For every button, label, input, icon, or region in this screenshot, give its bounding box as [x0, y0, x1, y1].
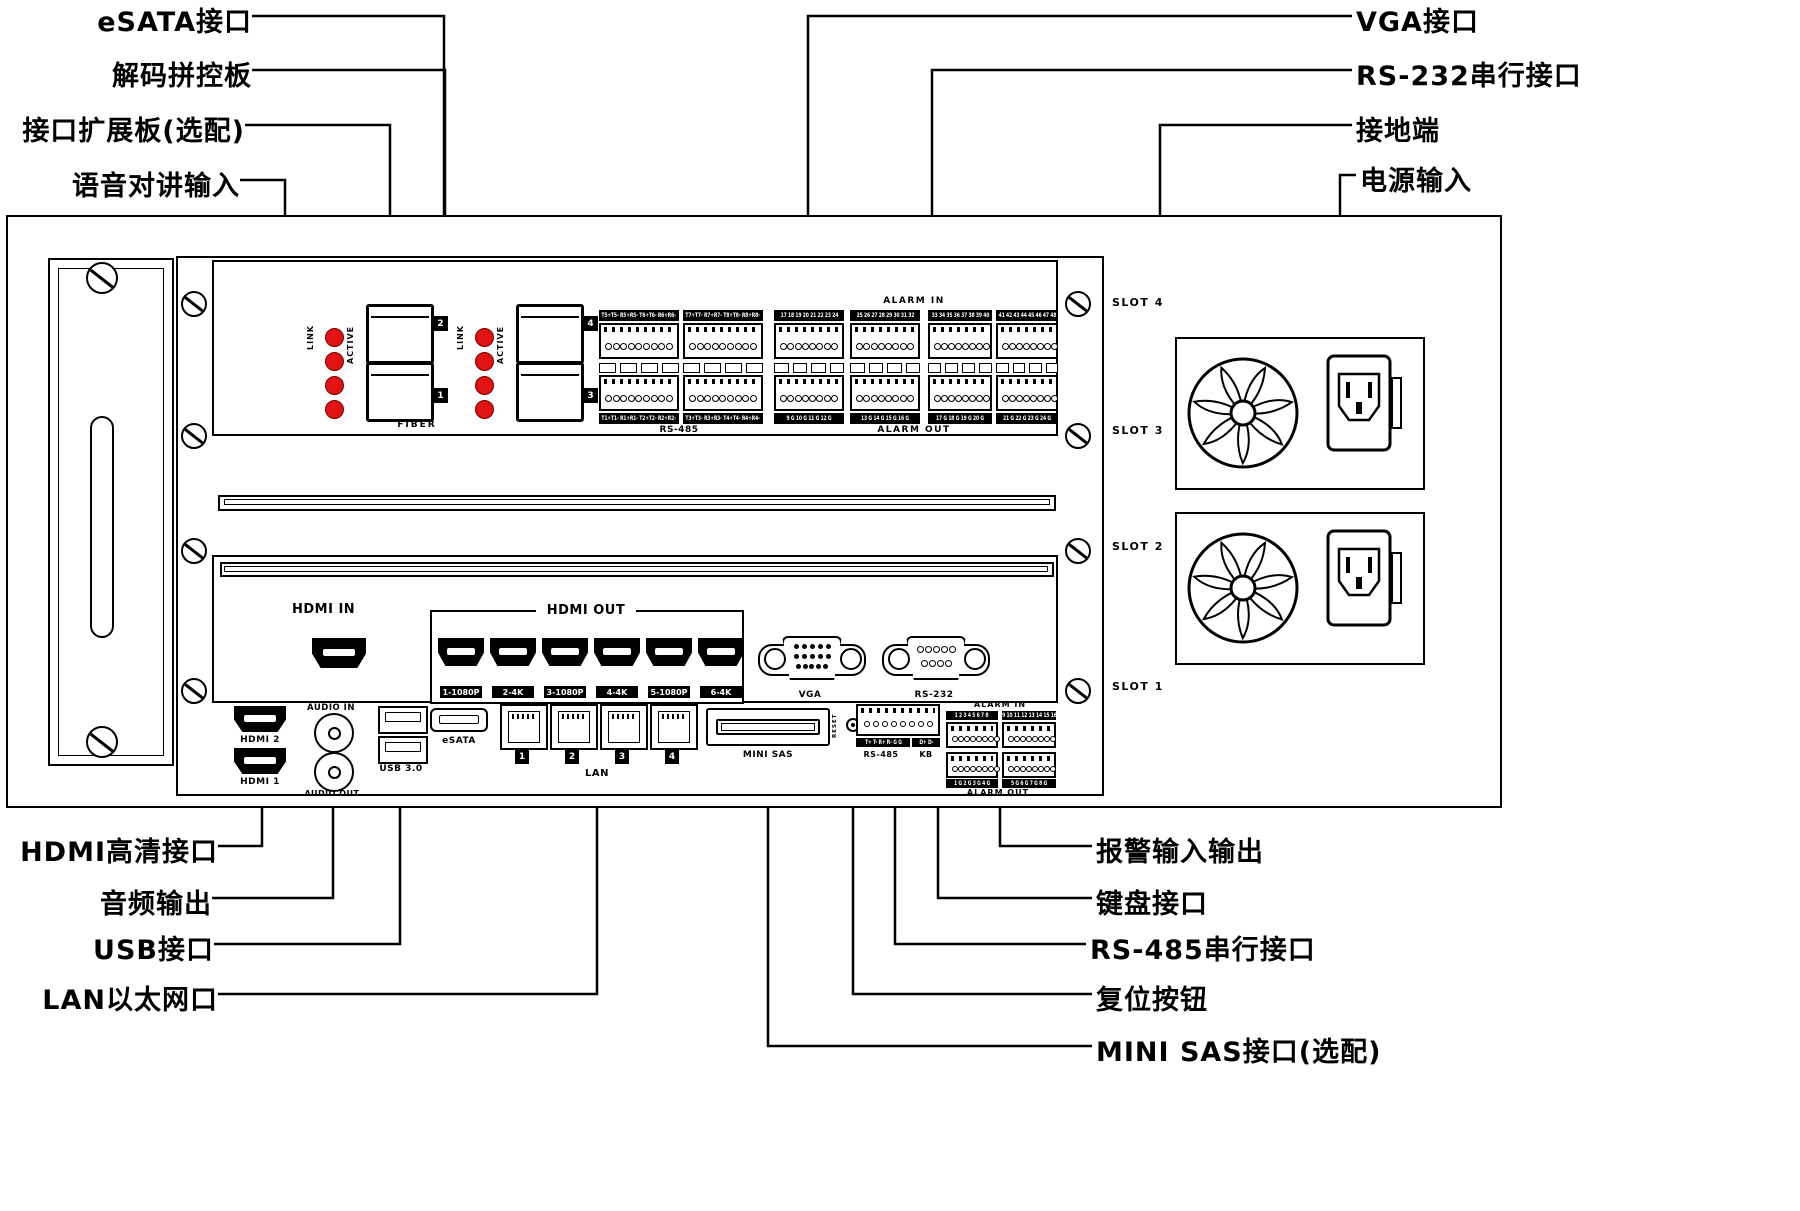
alarm-out-bar: 5 G 6 G 7 G 8 G [1002, 779, 1056, 788]
screw-icon [86, 262, 118, 294]
rs485-bottom-bar: T1+T1- R1+R1- T2+T2- R2+R2- [599, 413, 679, 424]
terminal-connector [683, 375, 763, 411]
vga-label: VGA [792, 690, 828, 700]
callout-audio-in: 语音对讲输入 [72, 164, 240, 203]
callout-expansion-board: 接口扩展板(选配) [22, 109, 245, 148]
callout-power-in: 电源输入 [1360, 159, 1472, 198]
hdmi-out-port [646, 638, 692, 666]
rs485-top-bar: T5+T5- R5+R5- T6+T6- R6+R6- [599, 310, 679, 321]
rs232-screw-hole [964, 648, 986, 670]
jumper-row [996, 363, 1058, 373]
terminal-connector [1002, 722, 1056, 748]
rs232-screw-hole [888, 648, 910, 670]
alarm-out-label: ALARM OUT [844, 425, 984, 435]
hdmi-out-label: HDMI OUT [536, 603, 636, 618]
lan-port [600, 704, 648, 750]
power-inlet-icon [1326, 529, 1404, 627]
hdmi-out-port-label: 4-4K [596, 686, 638, 698]
usb-label: USB 3.0 [368, 764, 434, 774]
alarm-in-bar: 41 42 43 44 45 46 47 48 [996, 310, 1058, 321]
fiber-active-label: ACTIVE [497, 302, 505, 364]
audio-out-label: AUDIO OUT [293, 789, 371, 798]
alarm-out-bar: 1 G 2 G 3 G 4 G [946, 779, 998, 788]
rs485-label: RS-485 [848, 750, 914, 759]
kb-label: KB [912, 750, 940, 759]
jumper-row [599, 363, 679, 373]
lan-port-number: 3 [615, 750, 629, 764]
callout-esata: eSATA接口 [97, 0, 252, 39]
hdmi2-port [234, 706, 286, 732]
terminal-connector [850, 375, 920, 411]
alarm-in-bar: 33 34 35 36 37 38 39 40 [928, 310, 992, 321]
hdmi-out-port-label: 3-1080P [544, 686, 586, 698]
fiber-port-badge: 4 [583, 316, 598, 331]
sfp-cage [516, 304, 584, 364]
fiber-port-badge: 1 [433, 388, 448, 403]
sfp-cage [516, 362, 584, 422]
reset-label: RESET [833, 702, 839, 738]
callout-usb: USB接口 [93, 928, 214, 967]
jumper-row [683, 363, 763, 373]
hdmi-out-port [594, 638, 640, 666]
callout-ground: 接地端 [1356, 109, 1440, 148]
terminal-connector [683, 323, 763, 359]
terminal-connector [928, 375, 992, 411]
fiber-port-badge: 2 [433, 316, 448, 331]
alarm-out-label: ALARM OUT [942, 788, 1054, 797]
lan-port [500, 704, 548, 750]
hdmi1-label: HDMI 1 [220, 777, 300, 787]
alarm-in-label: ALARM IN [948, 700, 1052, 709]
terminal-connector [1002, 752, 1056, 778]
fiber-link-label: LINK [307, 302, 315, 350]
screw-icon [1065, 423, 1091, 449]
power-inlet-icon [1326, 354, 1404, 452]
terminal-connector [946, 722, 998, 748]
lan-port-number: 4 [665, 750, 679, 764]
screw-icon [181, 538, 207, 564]
hdmi-out-port-label: 5-1080P [648, 686, 690, 698]
screw-icon [86, 726, 118, 758]
callout-decode-board: 解码拼控板 [112, 54, 252, 93]
rear-panel-diagram: eSATA接口 解码拼控板 接口扩展板(选配) 语音对讲输入 VGA接口 RS-… [0, 0, 1800, 1211]
slot4-label: SLOT 4 [1112, 296, 1164, 309]
slot2-decode-card: HDMI IN HDMI OUT 1-1080P 2-4K 3-1080P 4-… [212, 555, 1058, 703]
alarm-out-bar: 17 G 18 G 19 G 20 G [928, 413, 992, 424]
terminal-connector [774, 375, 844, 411]
led-indicator [325, 400, 344, 419]
terminal-connector [996, 375, 1058, 411]
slot1-label: SLOT 1 [1112, 680, 1164, 693]
hdmi-in-label: HDMI IN [292, 602, 382, 617]
jumper-row [774, 363, 844, 373]
callout-rs232: RS-232串行接口 [1356, 54, 1582, 93]
vga-screw-hole [840, 648, 862, 670]
terminal-connector [996, 323, 1058, 359]
slot3-blank-inner [224, 499, 1050, 505]
slot3-label: SLOT 3 [1112, 424, 1164, 437]
rs485-zone-label: RS-485 [631, 425, 727, 435]
callout-hdmi: HDMI高清接口 [20, 830, 218, 869]
usb-port [378, 706, 428, 734]
hdmi2-label: HDMI 2 [220, 735, 300, 745]
screw-icon [1065, 678, 1091, 704]
slot4-expansion-card: LINK ACTIVE 2 1 LINK ACTIVE 4 3 FIBER T5… [212, 260, 1058, 436]
esata-port-slot [439, 715, 479, 724]
terminal-connector [850, 323, 920, 359]
hdmi-out-port-label: 2-4K [492, 686, 534, 698]
audio-in-jack [314, 713, 354, 753]
screw-icon [1065, 538, 1091, 564]
jumper-row [850, 363, 920, 373]
hdmi-out-port [698, 638, 744, 666]
hdmi1-port [234, 748, 286, 774]
led-indicator [325, 328, 344, 347]
led-indicator [475, 352, 494, 371]
lan-port [550, 704, 598, 750]
led-indicator [475, 376, 494, 395]
callout-alarm-io: 报警输入输出 [1096, 830, 1264, 869]
led-indicator [325, 376, 344, 395]
led-indicator [475, 400, 494, 419]
esata-label: eSATA [422, 736, 496, 746]
audio-in-label: AUDIO IN [297, 703, 365, 713]
slot2-top-strip-inner [224, 566, 1048, 572]
screw-icon [181, 423, 207, 449]
audio-out-jack [314, 752, 354, 792]
hdmi-out-port [438, 638, 484, 666]
rs232-port [906, 636, 966, 680]
hdmi-in-port [312, 638, 366, 668]
hdmi-out-port [542, 638, 588, 666]
alarm-in-bar: 1 2 3 4 5 6 7 8 [946, 711, 998, 720]
fan-icon [1186, 531, 1300, 645]
lan-port-number: 1 [515, 750, 529, 764]
fiber-label: FIBER [342, 420, 492, 430]
rs232-label: RS-232 [902, 690, 966, 700]
terminal-connector [774, 323, 844, 359]
rs485-pin-bar: T+ T- R+ R- G G [856, 738, 910, 747]
alarm-out-bar: 13 G 14 G 15 G 16 G [850, 413, 920, 424]
rs485-bottom-bar: T3+T3- R3+R3- T4+T4- R4+R4- [683, 413, 763, 424]
fiber-link-label: LINK [457, 302, 465, 350]
fiber-port-badge: 3 [583, 388, 598, 403]
led-indicator [475, 328, 494, 347]
alarm-in-bar: 17 18 19 20 21 22 23 24 [774, 310, 844, 321]
callout-rs485: RS-485串行接口 [1090, 928, 1316, 967]
hdmi-out-port-label: 6-4K [700, 686, 742, 698]
callout-vga: VGA接口 [1356, 0, 1479, 39]
hdmi-out-port [490, 638, 536, 666]
fan-icon [1186, 356, 1300, 470]
callout-minisas: MINI SAS接口(选配) [1096, 1030, 1381, 1069]
alarm-in-label: ALARM IN [814, 296, 1014, 306]
alarm-out-bar: 21 G 22 G 23 G 24 G [996, 413, 1058, 424]
terminal-connector [599, 323, 679, 359]
lan-port-number: 2 [565, 750, 579, 764]
alarm-out-bar: 9 G 10 G 11 G 12 G [774, 413, 844, 424]
sfp-cage [366, 304, 434, 364]
sfp-cage [366, 362, 434, 422]
reset-button-pin [851, 723, 855, 727]
lan-label: LAN [574, 768, 620, 779]
hdmi-out-port-label: 1-1080P [440, 686, 482, 698]
kb-pin-bar: D+ D- [912, 738, 940, 747]
screw-icon [181, 291, 207, 317]
vga-screw-hole [764, 648, 786, 670]
screw-icon [181, 678, 207, 704]
lan-port [650, 704, 698, 750]
screw-icon [1065, 291, 1091, 317]
callout-keyboard: 键盘接口 [1096, 882, 1208, 921]
rs485-top-bar: T7+T7- R7+R7- T8+T8- R8+R8- [683, 310, 763, 321]
alarm-in-bar: 9 10 11 12 13 14 15 16 [1002, 711, 1056, 720]
usb-port [378, 736, 428, 764]
terminal-connector [946, 752, 998, 778]
jumper-row [928, 363, 992, 373]
vga-port [782, 636, 842, 680]
slot2-label: SLOT 2 [1112, 540, 1164, 553]
terminal-connector [928, 323, 992, 359]
terminal-connector [599, 375, 679, 411]
callout-reset: 复位按钮 [1096, 978, 1208, 1017]
fiber-active-label: ACTIVE [347, 302, 355, 364]
minisas-label: MINI SAS [718, 750, 818, 760]
rs485-kb-connector [856, 704, 940, 736]
callout-lan: LAN以太网口 [42, 978, 218, 1017]
alarm-in-bar: 25 26 27 28 29 30 31 32 [850, 310, 920, 321]
callout-audio-out: 音频输出 [100, 882, 212, 921]
handle-slot [90, 416, 114, 638]
minisas-port-slot-inner [721, 723, 815, 731]
led-indicator [325, 352, 344, 371]
